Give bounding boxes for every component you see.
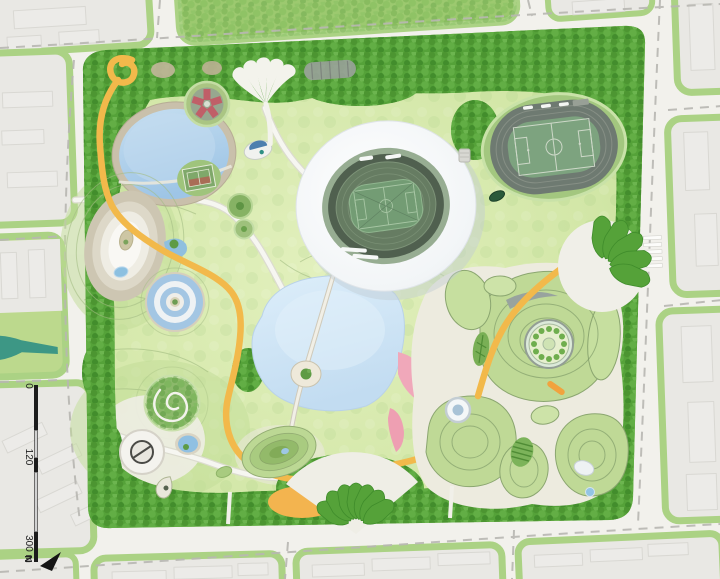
building: [2, 130, 44, 145]
building: [590, 548, 642, 562]
city-block-bottom-3: [518, 533, 720, 579]
park: [53, 26, 653, 534]
building: [174, 566, 232, 579]
building: [684, 132, 710, 191]
building: [28, 249, 46, 298]
scale-tick-start-label: 0: [23, 383, 34, 389]
blue-poollet: [175, 433, 201, 455]
city-block-left-1: [0, 51, 75, 226]
site-plan: 0 120 300 m N: [0, 0, 720, 579]
building: [2, 91, 52, 108]
city-block-bottom-1: [94, 553, 284, 579]
target-rings: [141, 268, 209, 336]
city-block-right-3: [659, 308, 720, 521]
building: [681, 326, 713, 383]
splash-pool: [446, 398, 470, 422]
building: [688, 402, 716, 463]
masterplan-canvas: 0 120 300 m N: [0, 0, 720, 579]
carousel: [185, 82, 229, 126]
building: [648, 543, 688, 557]
building: [534, 553, 582, 567]
city-block-right-1: [674, 0, 720, 93]
scale-tick-mid-label: 120: [23, 449, 34, 466]
building: [372, 557, 430, 571]
building: [238, 563, 268, 576]
building: [13, 6, 86, 28]
building: [686, 473, 717, 510]
building: [112, 570, 166, 579]
building: [7, 171, 57, 188]
lake-island: [291, 361, 321, 387]
building: [689, 4, 715, 71]
building: [0, 252, 18, 299]
maze-garden: [145, 376, 199, 430]
blue-pool-dot: [586, 488, 595, 497]
city-block-bottom-left-corner: [0, 554, 77, 579]
pergola: [303, 59, 356, 81]
city-block-left-2-lawn: [0, 235, 67, 378]
building: [59, 30, 100, 45]
tree-ring-plaza: [525, 320, 573, 368]
building: [312, 563, 364, 577]
city-block-right-2: [667, 116, 720, 295]
building: [694, 213, 718, 266]
north-label: N: [22, 555, 33, 562]
building: [438, 552, 490, 566]
compass-plaza: [120, 430, 164, 474]
kiosk: [459, 149, 470, 162]
